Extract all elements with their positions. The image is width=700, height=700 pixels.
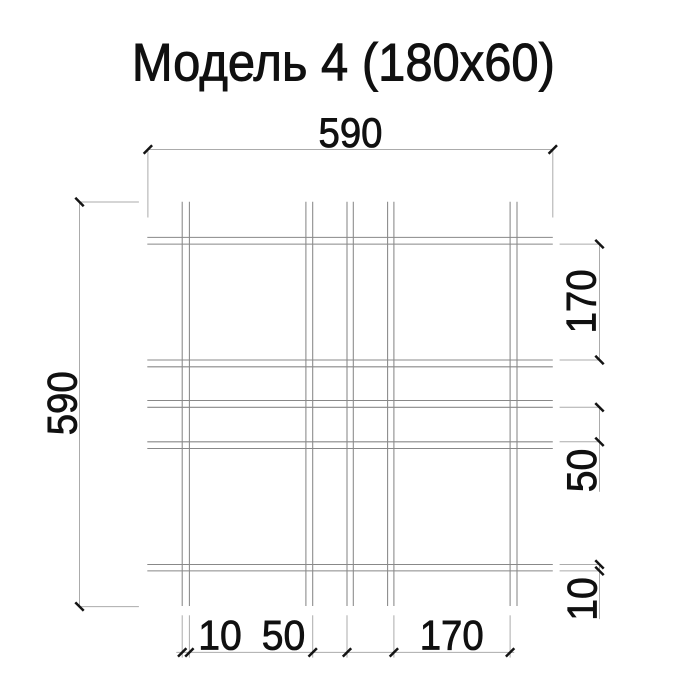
svg-text:Модель 4 (180x60): Модель 4 (180x60) bbox=[132, 34, 555, 92]
svg-text:10: 10 bbox=[198, 611, 242, 658]
svg-text:170: 170 bbox=[558, 269, 605, 333]
svg-text:50: 50 bbox=[262, 611, 306, 658]
svg-text:50: 50 bbox=[558, 449, 605, 493]
svg-text:590: 590 bbox=[319, 109, 383, 156]
svg-text:10: 10 bbox=[559, 577, 606, 621]
svg-text:170: 170 bbox=[420, 611, 484, 658]
svg-text:590: 590 bbox=[38, 371, 85, 435]
